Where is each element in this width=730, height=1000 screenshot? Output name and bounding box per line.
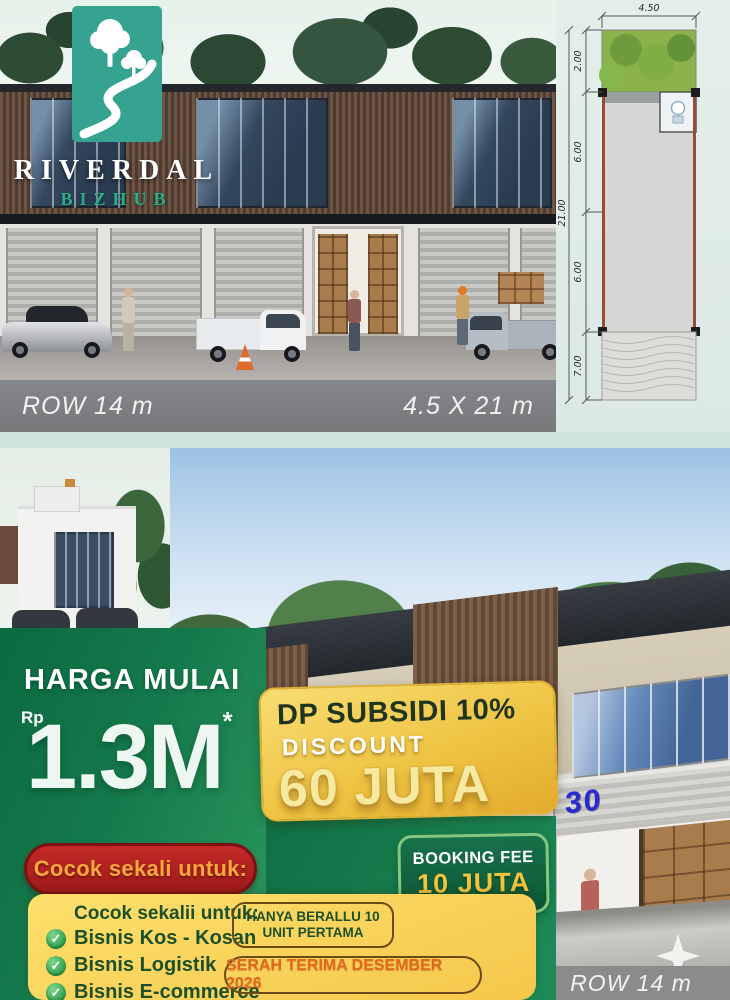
- booking-fee-label: BOOKING FEE: [413, 848, 534, 869]
- price-value: 1.3M*: [26, 708, 233, 803]
- spec-bar: ROW 14 m 4.5 X 21 m: [0, 380, 556, 432]
- row-width-bar: ROW 14 m: [532, 966, 730, 1000]
- dim-garden-label: 2.00: [573, 50, 584, 71]
- glass-facade: [54, 532, 114, 608]
- suitable-info-card: Cocok sekalii untuk: ✓ Bisnis Kos - Kosa…: [28, 894, 536, 1000]
- dim-mid-a-label: 6.00: [573, 141, 584, 162]
- upper-window: [452, 98, 552, 208]
- upper-window: [572, 672, 730, 779]
- floor-beam: [0, 214, 556, 224]
- suitable-ribbon-label: Cocok sekali untuk:: [34, 856, 248, 882]
- check-icon: ✓: [46, 929, 66, 949]
- dp-subsidi-title: DP SUBSIDI 10%: [277, 693, 539, 733]
- plan-garden: [599, 30, 696, 92]
- plan-front-paving: [602, 332, 696, 400]
- limited-units-pill: HANYA BERALLU 10 UNIT PERTAMA: [232, 902, 394, 948]
- person-standing: [122, 288, 135, 354]
- brand-name: RIVERDAL: [4, 155, 229, 187]
- suitable-ribbon: Cocok sekali untuk:: [24, 843, 257, 895]
- sports-car: [2, 306, 112, 358]
- site-floor-plan: 4.50 2.00 6.00 6.00 7.00 21.00: [556, 0, 730, 432]
- price-heading: HARGA MULAI: [24, 664, 240, 697]
- brand-subname: BIZHUB: [4, 189, 229, 210]
- top-building-render: RIVERDAL BIZHUB ROW 14 m 4.5 X 21 m: [0, 0, 556, 432]
- list-item: ✓ Bisnis Logistik: [46, 954, 216, 977]
- plan-bathroom: [660, 92, 696, 132]
- floor-plan-drawing: 4.50 2.00 6.00 6.00 7.00 21.00: [556, 0, 730, 432]
- dim-mid-b-label: 6.00: [573, 261, 584, 282]
- unit-number: 30: [565, 783, 602, 821]
- white-pickup-truck: [196, 292, 314, 362]
- handover-pill: SERAH TERIMA DESEMBER 2026: [224, 956, 482, 994]
- gray-pickup-truck: [466, 296, 556, 360]
- dim-width-label: 4.50: [638, 3, 659, 14]
- plan-header-strip: [602, 92, 660, 103]
- stock-shelf: [318, 234, 348, 334]
- price-note: *: [223, 706, 233, 736]
- list-item: ✓ Bisnis Kos - Kosan: [46, 927, 256, 950]
- plan-dim-chain: [582, 26, 602, 404]
- worker-person: [456, 286, 469, 348]
- dp-subsidi-card: DP SUBSIDI 10% DISCOUNT 60 JUTA: [258, 680, 558, 822]
- check-icon: ✓: [46, 983, 66, 1000]
- flyer-canvas: RIVERDAL BIZHUB ROW 14 m 4.5 X 21 m: [0, 0, 730, 1000]
- riverdal-logo-icon: [72, 6, 162, 147]
- plan-dim-width: [598, 12, 700, 28]
- dim-total-label: 21.00: [557, 199, 568, 226]
- person-walking: [348, 290, 361, 354]
- brand-logo-block: RIVERDAL BIZHUB: [4, 6, 229, 210]
- roof-structure: [34, 486, 80, 512]
- row-width-label: ROW 14 m: [570, 970, 692, 997]
- dim-front-label: 7.00: [573, 355, 584, 376]
- stock-shelf: [368, 234, 398, 334]
- discount-value: 60 JUTA: [278, 757, 540, 816]
- row-width-label: ROW 14 m: [22, 392, 154, 421]
- check-icon: ✓: [46, 956, 66, 976]
- lot-size-label: 4.5 X 21 m: [403, 392, 534, 421]
